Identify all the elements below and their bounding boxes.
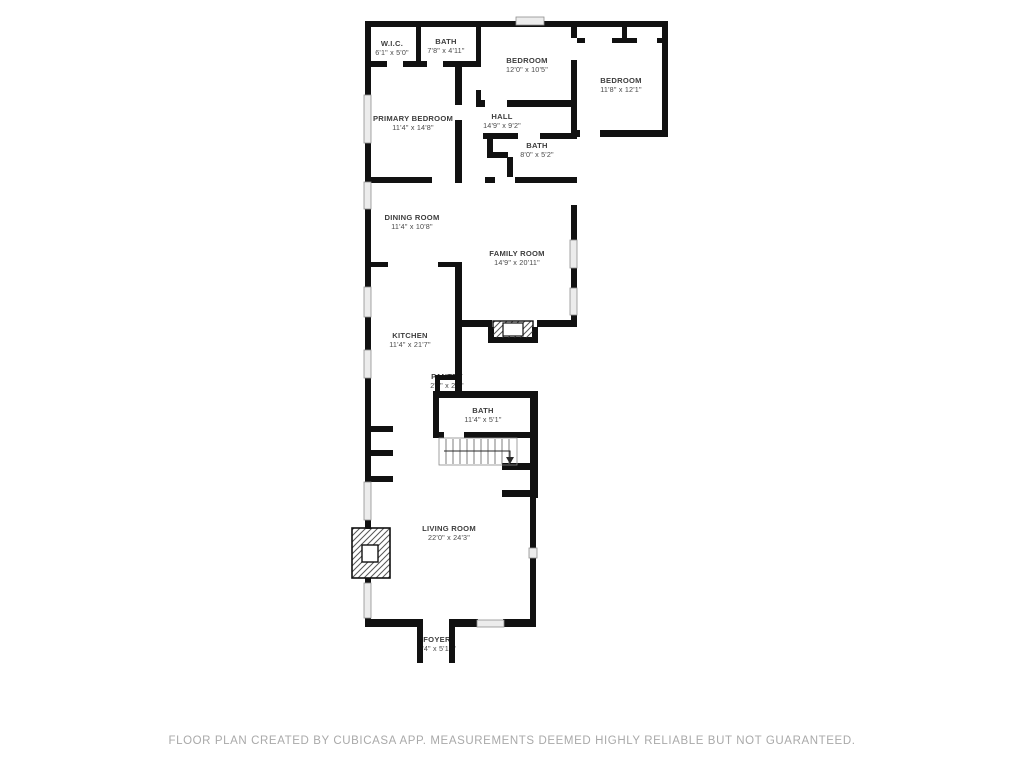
- wall-segment: [507, 100, 571, 107]
- wall-segment: [371, 450, 393, 456]
- disclaimer-text: FLOOR PLAN CREATED BY CUBICASA APP. MEAS…: [0, 735, 1024, 747]
- stair-direction-line: [444, 451, 510, 458]
- wall-segment: [487, 152, 508, 158]
- wall-segment: [503, 619, 530, 627]
- room-dims-wic: 6'1" x 5'0": [375, 48, 409, 57]
- room-label-bath-top: BATH: [435, 37, 457, 46]
- window: [570, 240, 577, 268]
- room-label-bath-hall: BATH: [526, 141, 548, 150]
- wall-segment: [416, 27, 421, 61]
- wall-segment: [571, 21, 577, 38]
- room-dims-bath-main: 11'4" x 5'1": [464, 415, 502, 424]
- wall-segment: [657, 38, 662, 43]
- room-label-bedroom-right: BEDROOM: [600, 76, 641, 85]
- wall-segment: [403, 61, 427, 67]
- window: [364, 182, 371, 209]
- wall-segment: [622, 27, 627, 39]
- wall-segment: [433, 391, 538, 398]
- wall-segment: [439, 432, 444, 438]
- room-dims-family-room: 14'9" x 20'11": [494, 258, 540, 267]
- room-dims-living-room: 22'0" x 24'3": [428, 533, 470, 542]
- firebox: [503, 323, 523, 336]
- staircase: [439, 438, 517, 465]
- wall-segment: [476, 21, 481, 67]
- room-dims-bath-top: 7'8" x 4'11": [427, 46, 465, 55]
- wall-segment: [530, 498, 536, 548]
- wall-segment: [365, 317, 371, 350]
- window: [516, 17, 544, 25]
- wall-segment: [662, 21, 668, 137]
- wall-segment: [365, 209, 371, 262]
- wall-segment: [365, 61, 387, 67]
- room-label-foyer: FOYER: [423, 635, 451, 644]
- wall-segment: [365, 425, 371, 482]
- wall-segment: [612, 38, 637, 43]
- stair-direction-arrow: [506, 457, 514, 464]
- wall-segment: [502, 463, 530, 470]
- firebox: [362, 545, 378, 562]
- window: [477, 620, 504, 627]
- floor-plan-drawing: W.I.C. 6'1" x 5'0" BATH 7'8" x 4'11" BED…: [0, 0, 1024, 768]
- window: [364, 482, 371, 520]
- wall-segment: [530, 558, 536, 627]
- wall-segment: [537, 320, 577, 327]
- room-dims-kitchen: 11'4" x 21'7": [389, 340, 431, 349]
- window: [529, 548, 537, 558]
- room-dims-primary-bedroom: 11'4" x 14'8": [392, 123, 434, 132]
- wall-segment: [371, 476, 393, 482]
- wall-segment: [540, 133, 577, 139]
- room-label-hall: HALL: [491, 112, 512, 121]
- room-dims-bedroom-middle: 12'0" x 10'5": [506, 65, 548, 74]
- wall-segment: [577, 38, 585, 43]
- wall-segment: [455, 120, 462, 183]
- wall-segment: [571, 60, 577, 137]
- window: [364, 287, 371, 317]
- wall-segment: [571, 268, 577, 288]
- wall-segment: [483, 133, 518, 139]
- room-labels: W.I.C. 6'1" x 5'0" BATH 7'8" x 4'11" BED…: [373, 37, 642, 653]
- room-label-family-room: FAMILY ROOM: [489, 249, 545, 258]
- room-label-kitchen: KITCHEN: [392, 331, 428, 340]
- wall-segment: [365, 262, 388, 267]
- room-label-primary-bedroom: PRIMARY BEDROOM: [373, 114, 453, 123]
- wall-segment: [455, 61, 462, 105]
- wall-segment: [460, 320, 492, 327]
- wall-segment: [530, 398, 538, 498]
- wall-segment: [507, 157, 513, 177]
- window: [364, 350, 371, 378]
- window: [364, 95, 371, 143]
- wall-segment: [502, 490, 530, 497]
- wall-segment: [365, 267, 371, 287]
- room-label-dining-room: DINING ROOM: [384, 213, 439, 222]
- wall-segment: [571, 205, 577, 240]
- wall-segment: [365, 177, 432, 183]
- room-dims-bath-hall: 8'0" x 5'2": [520, 150, 554, 159]
- wall-segment: [476, 90, 481, 107]
- room-dims-dining-room: 11'4" x 10'8": [391, 222, 433, 231]
- wall-segment: [515, 177, 577, 183]
- floor-plan-page: W.I.C. 6'1" x 5'0" BATH 7'8" x 4'11" BED…: [0, 0, 1024, 768]
- wall-segment: [464, 432, 538, 438]
- window: [570, 288, 577, 315]
- wall-segment: [449, 619, 455, 663]
- wall-segment: [600, 130, 668, 137]
- fireplace-living-room: [352, 528, 390, 578]
- wall-segment: [485, 177, 495, 183]
- room-label-wic: W.I.C.: [381, 39, 403, 48]
- room-label-bath-main: BATH: [472, 406, 494, 415]
- room-dims-hall: 14'9" x 9'2": [483, 121, 521, 130]
- room-label-bedroom-middle: BEDROOM: [506, 56, 547, 65]
- wall-segment: [435, 375, 458, 380]
- wall-segment: [371, 426, 393, 432]
- wall-segment: [365, 619, 417, 627]
- wall-segment: [455, 619, 478, 627]
- wall-segment: [365, 378, 371, 426]
- room-label-living-room: LIVING ROOM: [422, 524, 476, 533]
- room-dims-bedroom-right: 11'8" x 12'1": [600, 85, 642, 94]
- wall-segment: [481, 100, 485, 107]
- wall-segment: [433, 398, 439, 438]
- fireplace-family-room: [493, 321, 533, 338]
- wall-segment: [417, 619, 423, 663]
- window: [364, 583, 371, 618]
